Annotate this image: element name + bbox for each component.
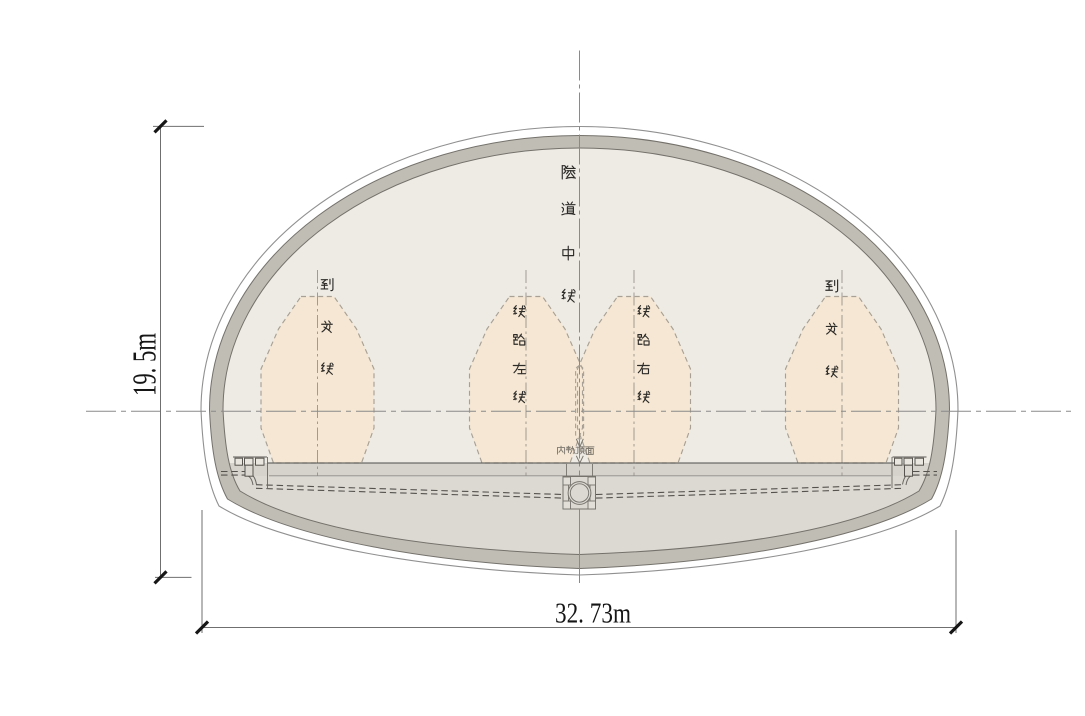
svg-text:32. 73m: 32. 73m: [555, 599, 631, 630]
svg-text:19. 5m: 19. 5m: [127, 333, 164, 396]
